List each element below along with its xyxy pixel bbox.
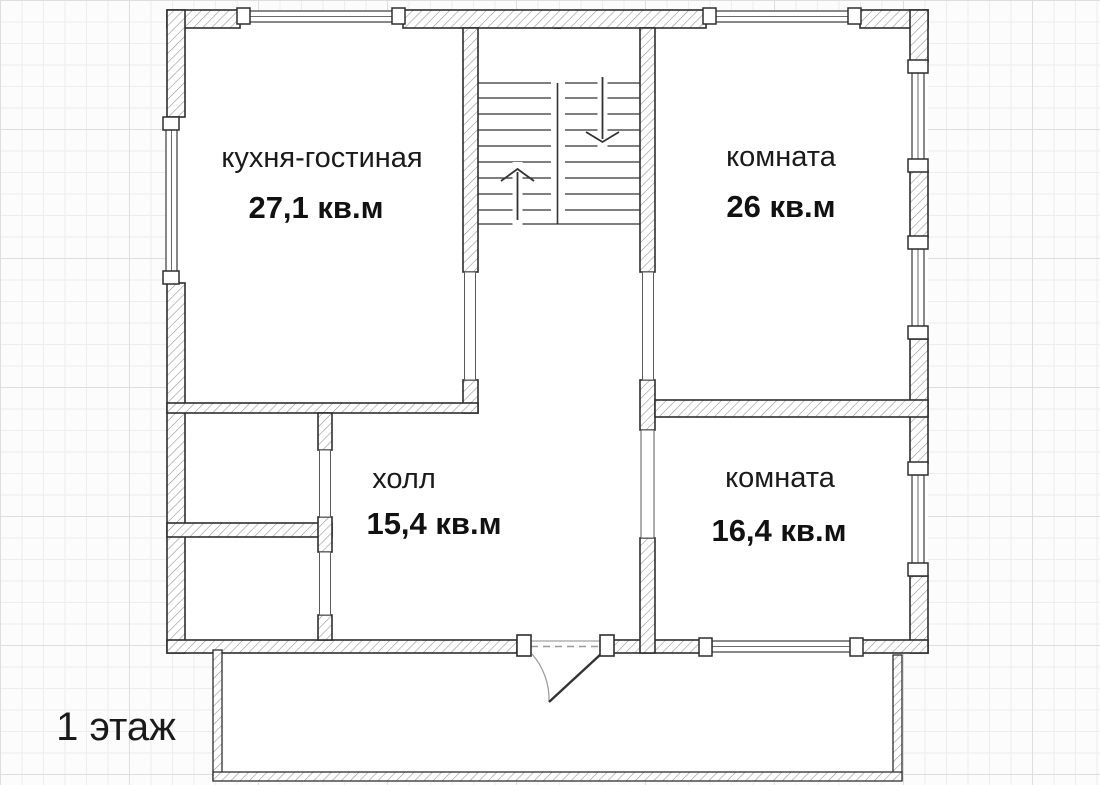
wall-segment <box>613 640 702 653</box>
room26-name: комната <box>726 141 837 173</box>
wall-segment <box>167 10 185 117</box>
hall-name: холл <box>372 463 436 495</box>
door-frame <box>517 635 531 656</box>
wall-segment <box>640 28 655 272</box>
wall-segment <box>910 171 928 237</box>
porch-wall-left <box>213 650 222 780</box>
kitchen-name: кухня-гостиная <box>221 142 422 174</box>
wall-segment <box>167 403 478 413</box>
kitchen-area: 27,1 кв.м <box>248 190 383 225</box>
wall-segment <box>463 28 478 272</box>
wall-segment <box>318 517 332 552</box>
wall-segment <box>861 640 928 653</box>
window-kitchen-left <box>163 117 179 284</box>
opening-small-room-2 <box>320 552 331 615</box>
wall-segment <box>318 413 332 450</box>
floor-title: 1 этаж <box>56 705 176 749</box>
wall-segment <box>640 538 655 653</box>
room16-name: комната <box>725 462 836 494</box>
room16-area: 16,4 кв.м <box>711 513 846 548</box>
wall-segment <box>403 10 706 28</box>
porch-wall-right <box>893 655 902 780</box>
room26-area: 26 кв.м <box>726 189 835 224</box>
wall-segment <box>655 400 928 417</box>
porch <box>213 650 902 782</box>
floor-plan: кухня-гостиная 27,1 кв.м комната 26 кв.м… <box>0 0 1100 785</box>
wall-segment <box>167 523 332 537</box>
opening-small-room-1 <box>320 450 331 517</box>
wall-segment <box>318 615 332 640</box>
opening-room26 <box>643 272 654 380</box>
opening-kitchen <box>465 272 476 380</box>
hall-area: 15,4 кв.м <box>366 506 501 541</box>
wall-segment <box>640 380 655 430</box>
building-footprint <box>167 10 928 782</box>
porch-wall-bottom <box>213 772 902 781</box>
opening-room16 <box>641 430 654 538</box>
wall-segment <box>910 10 928 62</box>
door-frame <box>600 635 614 656</box>
wall-segment <box>167 283 185 653</box>
